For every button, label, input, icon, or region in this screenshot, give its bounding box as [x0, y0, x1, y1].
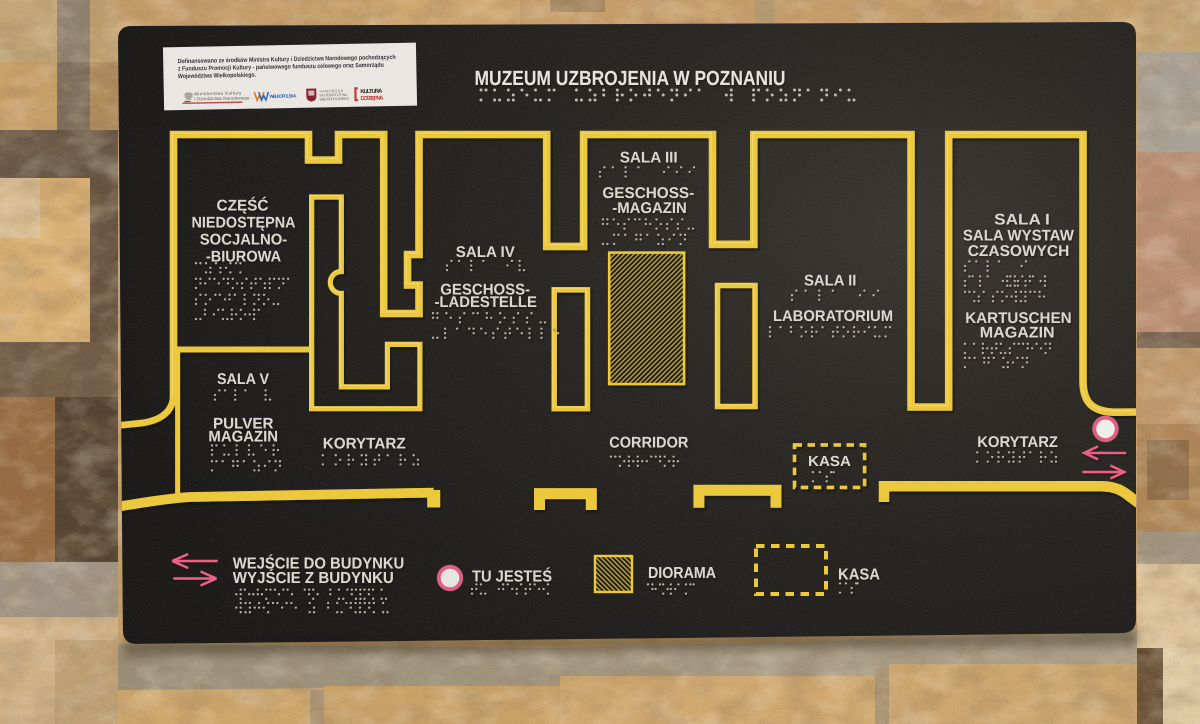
- svg-text:KASA: KASA: [838, 567, 880, 584]
- svg-text:SALA III: SALA III: [620, 149, 678, 166]
- svg-text:SALA WYSTAW: SALA WYSTAW: [963, 228, 1074, 245]
- svg-text:MAGAZIN: MAGAZIN: [208, 429, 278, 446]
- svg-text:KULTURA: KULTURA: [360, 89, 383, 95]
- svg-text:SALA II: SALA II: [804, 273, 857, 290]
- svg-text:SALA I: SALA I: [994, 212, 1050, 229]
- svg-text:-BIUROWA: -BIUROWA: [206, 249, 281, 266]
- svg-text:CZASOWYCH: CZASOWYCH: [968, 243, 1070, 260]
- svg-text:CZĘŚĆ: CZĘŚĆ: [217, 197, 269, 215]
- svg-text:MUZEUM UZBROJENIA W POZNANIU: MUZEUM UZBROJENIA W POZNANIU: [475, 67, 786, 90]
- svg-text:SOCJALNO-: SOCJALNO-: [200, 232, 288, 249]
- svg-text:-LADESTELLE: -LADESTELLE: [434, 294, 537, 311]
- svg-text:MAGAZIN: MAGAZIN: [980, 325, 1055, 342]
- svg-text:WIELKOPOLSKIEGO: WIELKOPOLSKIEGO: [319, 97, 349, 102]
- svg-text:NIEDOSTĘPNA: NIEDOSTĘPNA: [192, 215, 296, 232]
- svg-text:SALA IV: SALA IV: [456, 244, 516, 261]
- svg-text:LABORATORIUM: LABORATORIUM: [773, 308, 893, 325]
- svg-text:KASA: KASA: [808, 454, 852, 470]
- svg-text:WYJŚCIE Z BUDYNKU: WYJŚCIE Z BUDYNKU: [233, 568, 394, 587]
- svg-text:TU JESTEŚ: TU JESTEŚ: [472, 567, 552, 586]
- svg-text:WIELKOPOLSKA: WIELKOPOLSKA: [269, 93, 297, 99]
- svg-text:DIORAMA: DIORAMA: [648, 565, 716, 582]
- svg-text:CORRIDOR: CORRIDOR: [609, 435, 688, 452]
- svg-text:KORYTARZ: KORYTARZ: [323, 436, 406, 453]
- svg-text:KORYTARZ: KORYTARZ: [977, 434, 1058, 451]
- svg-text:DOSTĘPNA: DOSTĘPNA: [360, 95, 384, 102]
- svg-text:i Dziedzictwa Narodowego: i Dziedzictwa Narodowego: [194, 95, 250, 101]
- svg-text:SALA V: SALA V: [217, 371, 270, 388]
- svg-text:-MAGAZIN: -MAGAZIN: [612, 200, 687, 217]
